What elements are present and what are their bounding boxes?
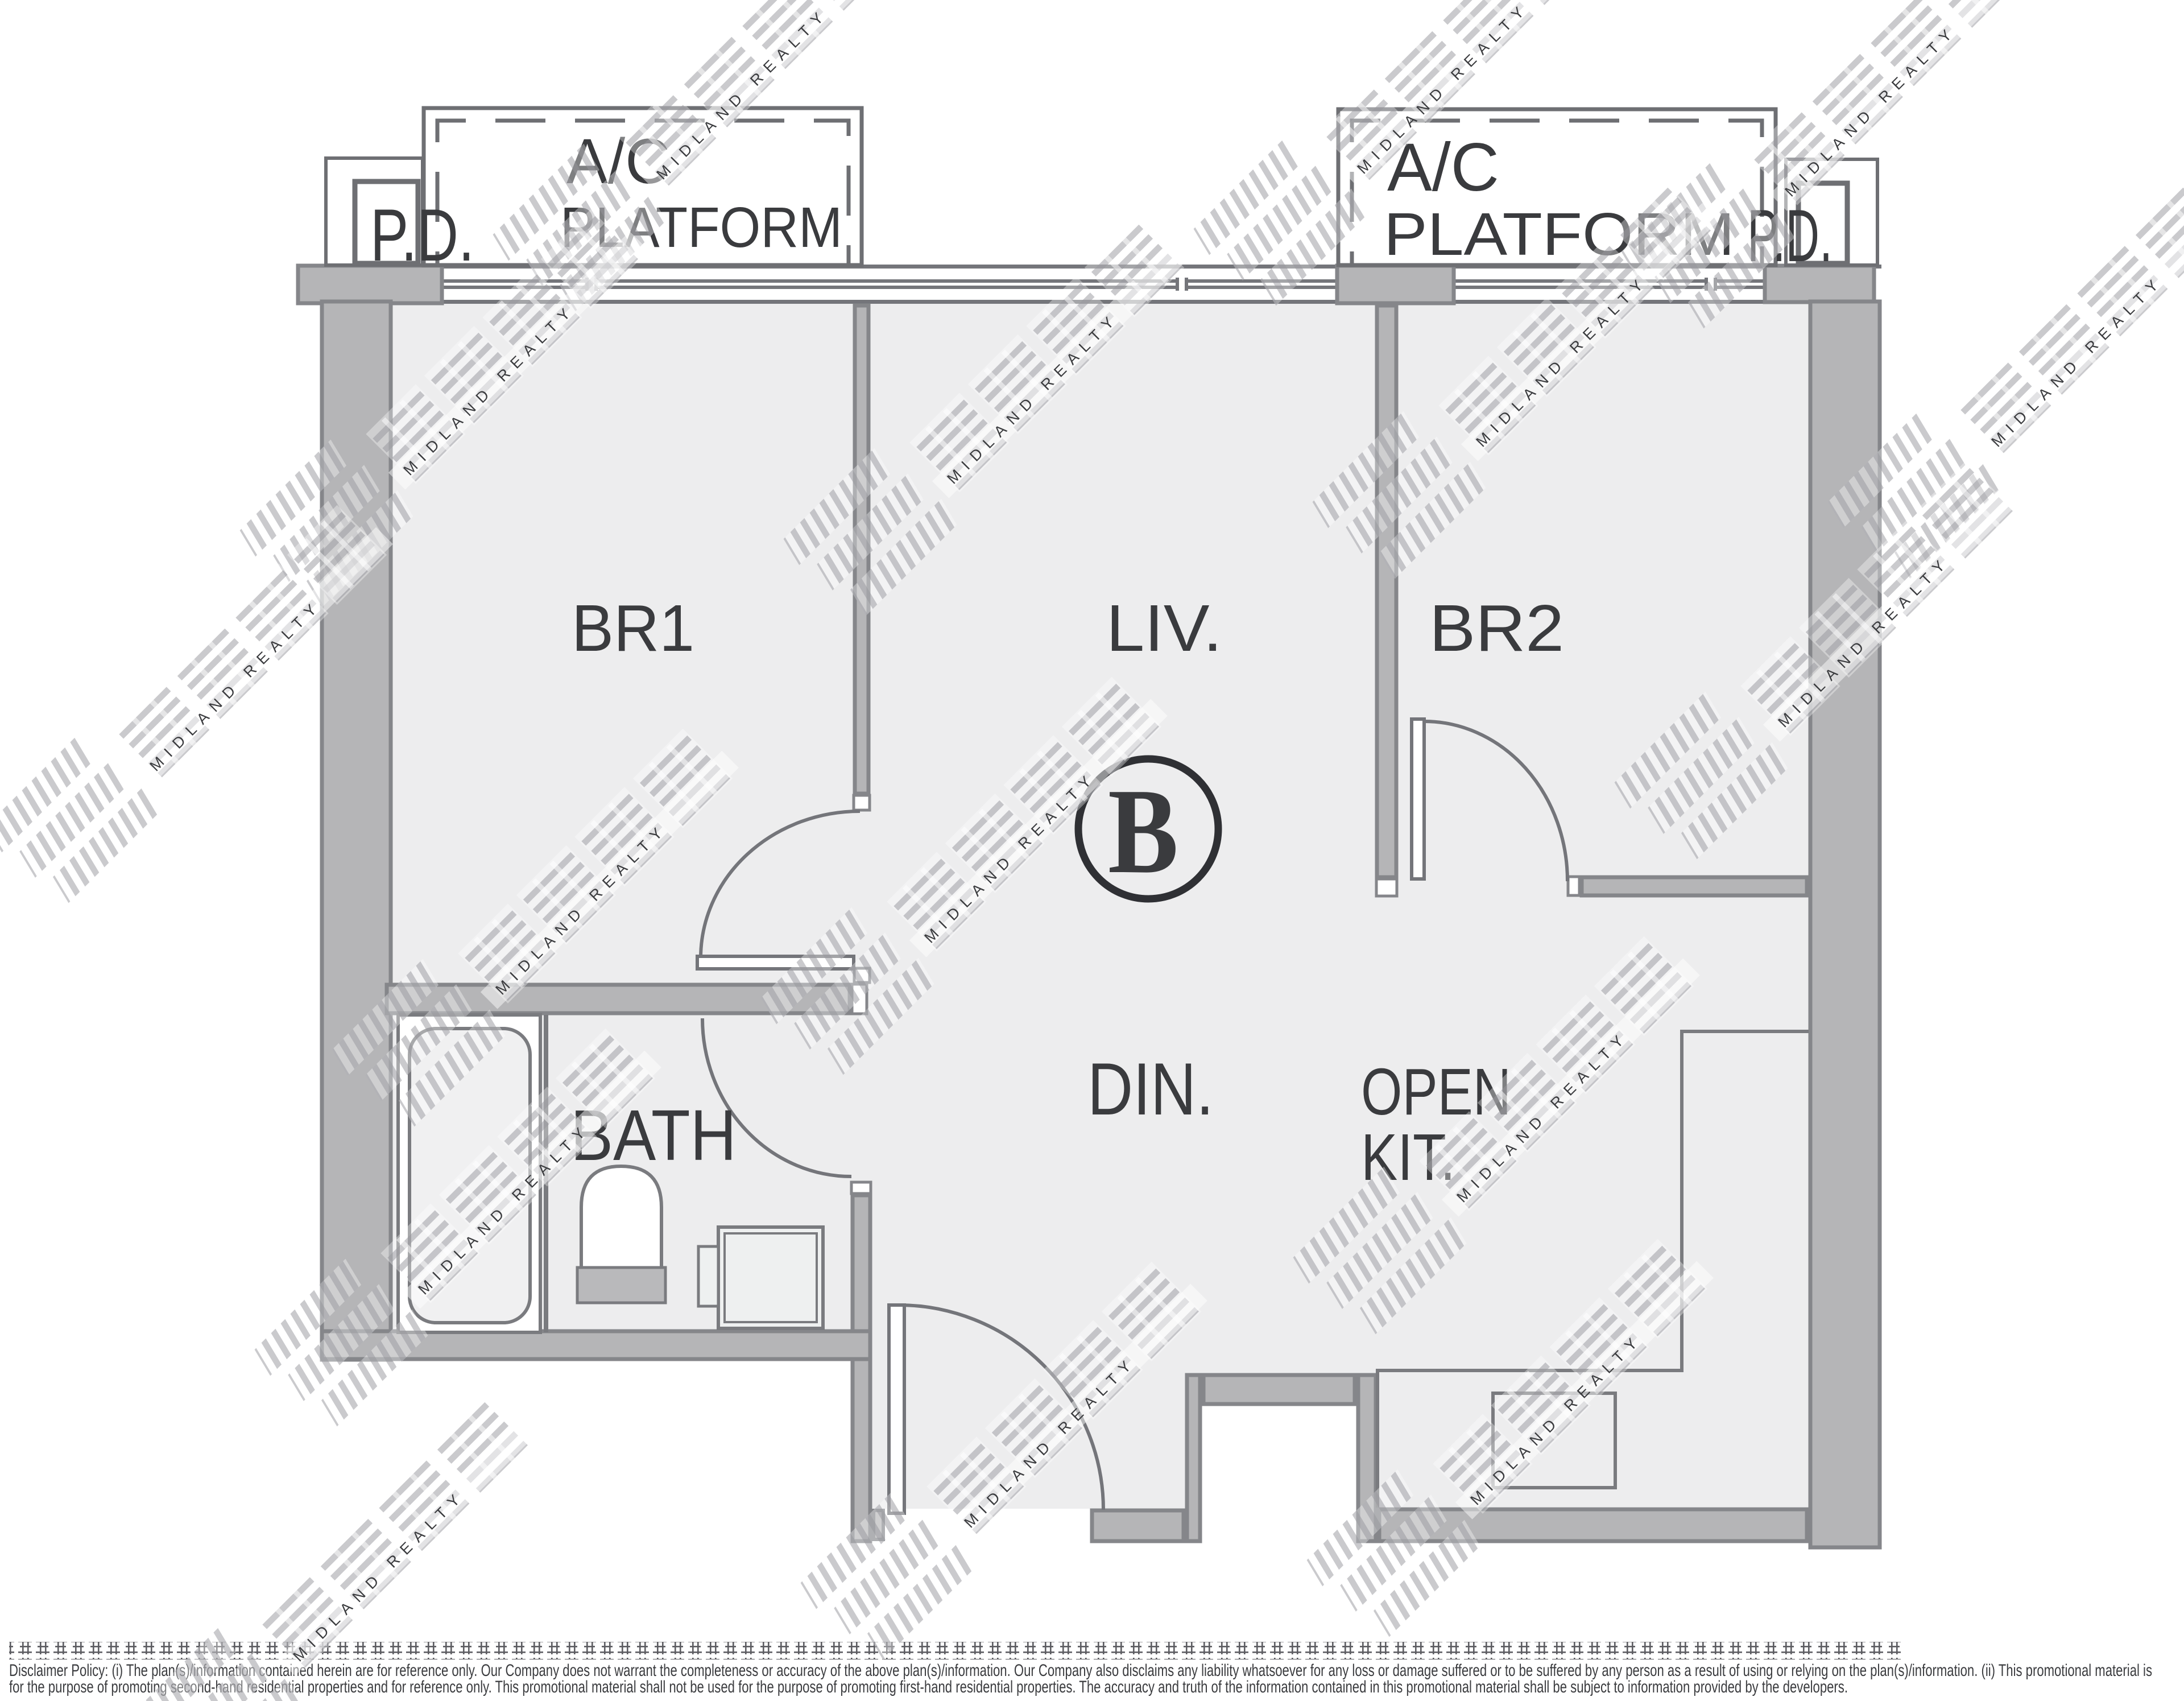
svg-text:B: B [1108,763,1178,899]
svg-text:BR1: BR1 [572,591,694,665]
svg-text:DIN.: DIN. [1087,1047,1214,1130]
svg-text:P.D.: P.D. [370,193,474,276]
svg-text:BR2: BR2 [1429,591,1564,665]
svg-text:LIV.: LIV. [1106,591,1222,665]
